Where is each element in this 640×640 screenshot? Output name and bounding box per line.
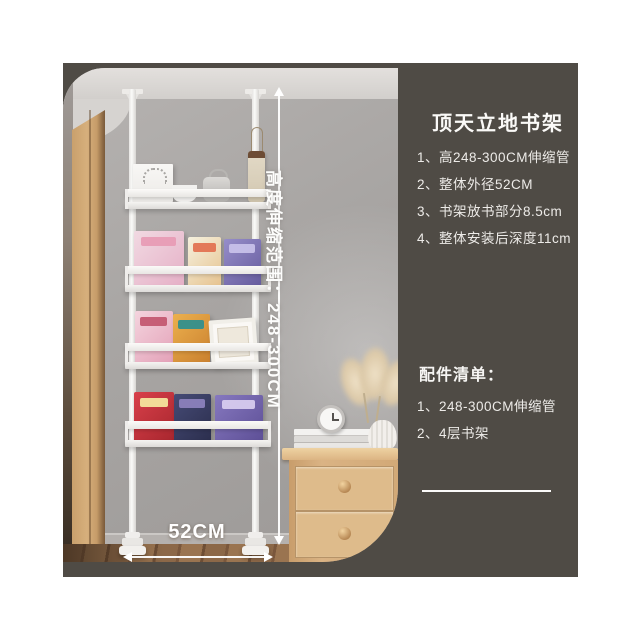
spec-item-1: 1、高248-300CM伸缩管 (417, 146, 570, 166)
book-title-stripe (179, 399, 205, 408)
nightstand-top (282, 448, 398, 460)
product-photo: 高度伸缩范围：248-300CM 52CM (63, 68, 398, 562)
bottle-cap (248, 151, 265, 158)
shelf-board-3 (125, 362, 271, 369)
shelf-endcap (268, 421, 271, 441)
shelf-board-4 (125, 440, 271, 447)
drawer-knob (338, 527, 351, 540)
accessory-item-2: 2、4层书架 (417, 422, 489, 442)
shelf-board-2 (125, 285, 271, 292)
height-range-label: 高度伸缩范围：248-300CM (263, 170, 288, 410)
book-cover (215, 395, 263, 442)
book-title-stripe (229, 244, 255, 253)
book-cover (134, 392, 174, 442)
gift-bag-handle (143, 168, 167, 184)
book-cover (134, 231, 184, 287)
book-title-stripe (140, 398, 168, 407)
alarm-clock (317, 405, 345, 433)
spec-item-2: 2、整体外径52CM (417, 173, 533, 193)
spec-item-3: 3、书架放书部分8.5cm (417, 200, 562, 220)
shelf-rail-4 (125, 421, 271, 429)
shelf-endcap (125, 343, 128, 363)
doorway-shadow (63, 68, 73, 562)
white-vase (368, 420, 397, 451)
shelf-board-1 (125, 202, 271, 209)
product-title: 顶天立地书架 (432, 107, 564, 136)
accessories-title: 配件清单： (419, 361, 504, 385)
pole-foot-left (122, 538, 143, 546)
shelf-rail-2 (125, 266, 271, 274)
picture-frame (208, 317, 258, 366)
book-cover (174, 394, 211, 442)
pole-foot-right (245, 538, 266, 546)
shelf-endcap (125, 266, 128, 286)
book-title-stripe (193, 243, 216, 252)
shelf-rail-3 (125, 343, 271, 351)
book-cover (135, 311, 173, 365)
book-cover (173, 314, 210, 365)
spec-item-4: 4、整体安装后深度11cm (417, 227, 571, 247)
shelf-endcap (125, 189, 128, 209)
shelf-rail-1 (125, 189, 271, 197)
book-title-stripe (222, 400, 256, 409)
divider-line (422, 490, 551, 492)
door-frame-seam (89, 110, 91, 546)
ceiling (63, 68, 398, 99)
book-title-stripe (141, 237, 176, 246)
shelf-endcap (125, 421, 128, 441)
accessory-item-1: 1、248-300CM伸缩管 (417, 395, 556, 415)
frame-mat (217, 326, 250, 358)
book-cover (188, 237, 221, 287)
book-title-stripe (178, 320, 204, 329)
width-measure-arrow (126, 556, 270, 558)
book-title-stripe (140, 317, 167, 326)
drawer-knob (338, 480, 351, 493)
book-cover (224, 239, 261, 287)
bottle-wire (251, 127, 263, 154)
width-label: 52CM (165, 521, 229, 544)
